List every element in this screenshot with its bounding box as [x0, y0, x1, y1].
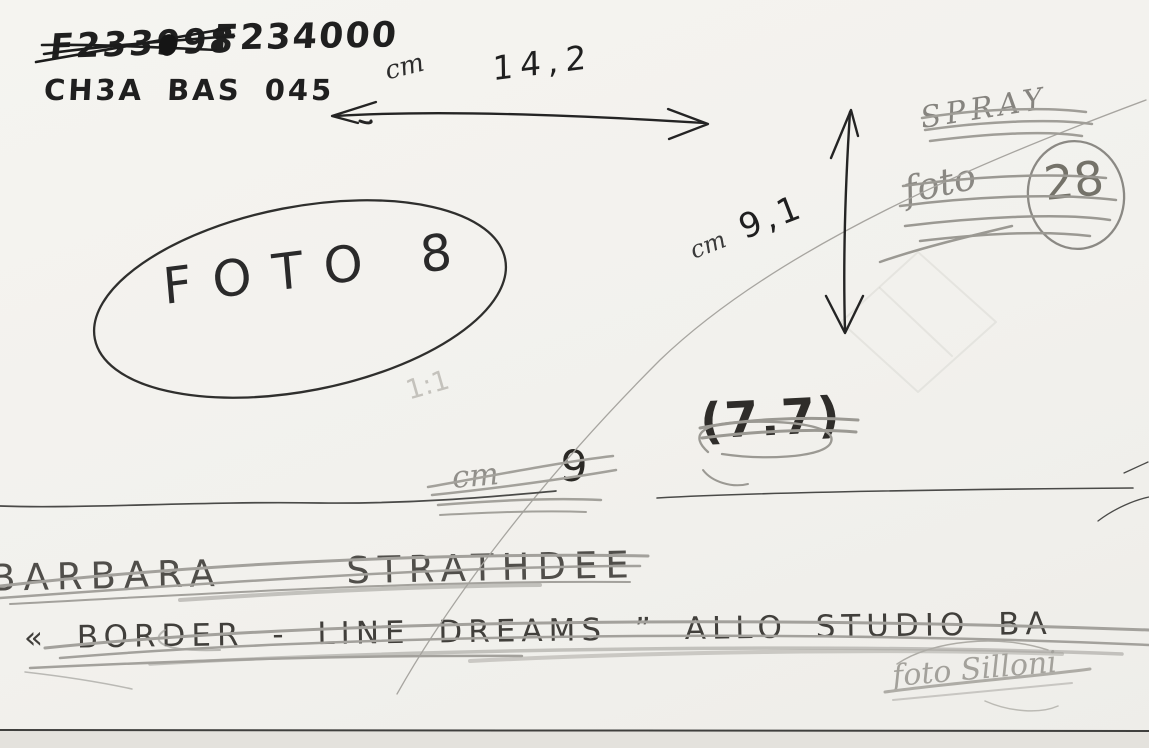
old-negative-number: F233998 — [48, 24, 238, 65]
crossed-ratio-label: (7.7) — [699, 390, 843, 446]
new-negative-number: F234000 — [213, 18, 399, 56]
crossed-value-label: 9 — [559, 445, 589, 490]
paper-bottom-edge-shadow — [0, 731, 1149, 748]
scanned-photo-card: F233998 F234000 CH3A BAS 045 cm 14,2 cm9… — [0, 0, 1149, 748]
foto-small-number: 28 — [1042, 155, 1106, 208]
catalog-code: CH3A BAS 045 — [43, 76, 335, 105]
crossed-unit-label: cm — [451, 459, 500, 494]
